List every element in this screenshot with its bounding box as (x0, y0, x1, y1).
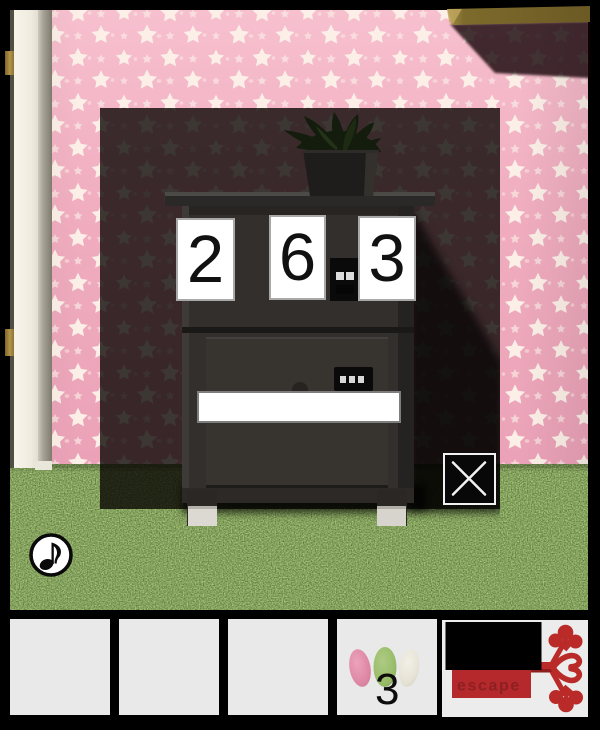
svg-text:escape: escape (457, 678, 521, 695)
svg-text:3: 3 (375, 665, 399, 714)
